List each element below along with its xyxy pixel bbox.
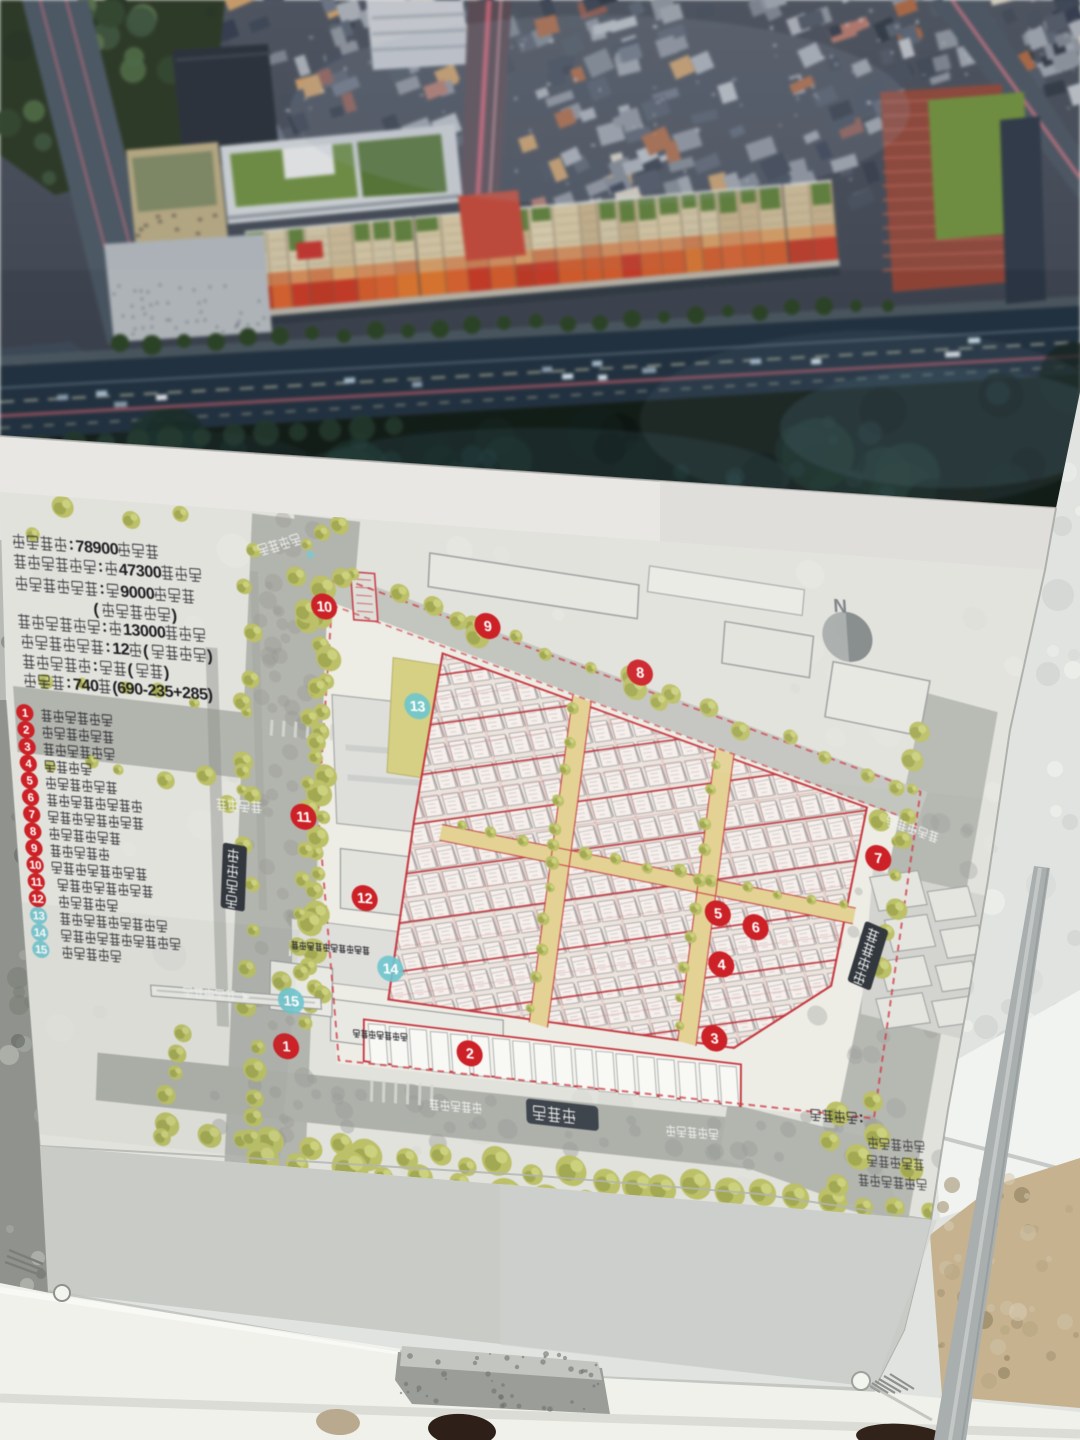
svg-text:3: 3 xyxy=(24,741,31,753)
svg-text:11: 11 xyxy=(296,809,312,826)
svg-text:12: 12 xyxy=(357,891,374,908)
svg-text:7: 7 xyxy=(28,809,35,821)
svg-text:740: 740 xyxy=(72,675,99,695)
svg-text:11: 11 xyxy=(30,876,43,889)
svg-text:12: 12 xyxy=(112,640,131,659)
svg-text:2: 2 xyxy=(23,724,30,736)
svg-text:10: 10 xyxy=(316,599,333,616)
svg-text:10: 10 xyxy=(29,859,42,872)
svg-text:13: 13 xyxy=(409,699,426,716)
svg-text:6: 6 xyxy=(27,792,34,804)
svg-text:13000: 13000 xyxy=(122,621,166,642)
svg-text:78900: 78900 xyxy=(75,537,119,558)
svg-text:14: 14 xyxy=(382,961,399,978)
svg-text:47300: 47300 xyxy=(118,561,162,582)
svg-text:9: 9 xyxy=(31,843,38,855)
svg-text:9000: 9000 xyxy=(120,583,156,604)
